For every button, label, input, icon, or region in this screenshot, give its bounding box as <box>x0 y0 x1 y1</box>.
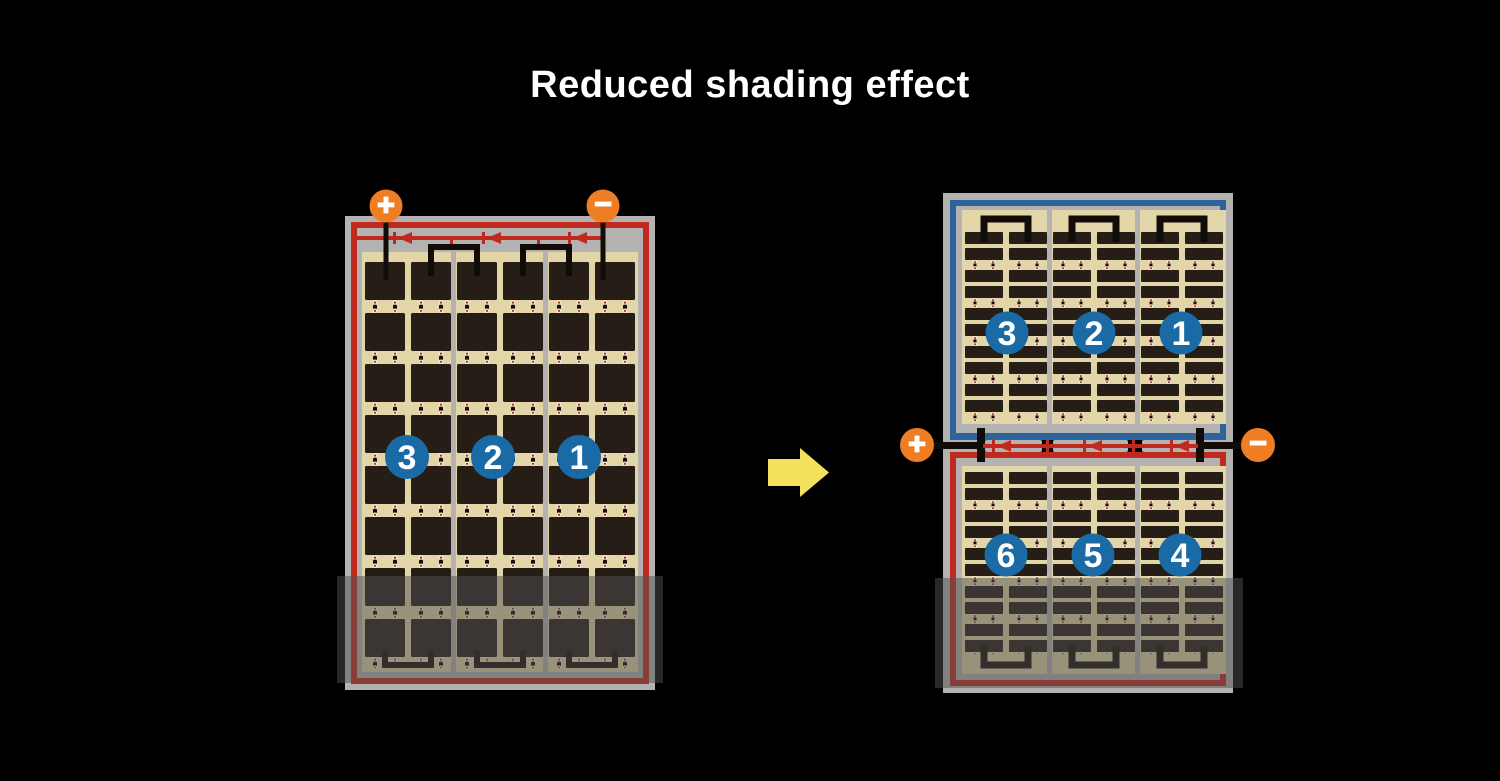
plus-terminal-icon: + <box>370 189 403 223</box>
minus-terminal-icon: − <box>1241 427 1275 462</box>
string-number: 3 <box>998 315 1017 353</box>
string-number-badge: 3 <box>986 312 1029 355</box>
string-number-badge: 6 <box>985 534 1028 577</box>
shading-overlay <box>935 578 1243 688</box>
left-panel: 3 2 1 + − <box>337 188 663 690</box>
right-panel: 3 2 1 <box>900 193 1275 693</box>
string-number-badge: 1 <box>1160 312 1203 355</box>
column-divider <box>1135 210 1140 424</box>
string-number: 1 <box>1172 315 1191 353</box>
right-panel-top-half: 3 2 1 <box>943 193 1233 440</box>
string-number-badge: 3 <box>385 435 429 479</box>
plus-label: + <box>908 428 926 461</box>
string-number-badge: 2 <box>1073 312 1116 355</box>
string-number: 6 <box>997 537 1016 575</box>
string-number: 1 <box>570 439 589 477</box>
string-number: 2 <box>484 439 503 477</box>
minus-label: − <box>1249 427 1267 460</box>
minus-terminal-icon: − <box>587 188 620 223</box>
string-number: 2 <box>1085 315 1104 353</box>
plus-terminal-icon: + <box>900 428 934 462</box>
string-number-badge: 5 <box>1072 534 1115 577</box>
string-number-badge: 4 <box>1159 534 1202 577</box>
shading-diagram: 3 2 1 + − <box>0 0 1500 781</box>
shading-overlay <box>337 576 663 683</box>
plus-label: + <box>377 189 395 222</box>
string-number: 4 <box>1171 537 1190 575</box>
string-number: 5 <box>1084 537 1103 575</box>
string-number: 3 <box>398 439 417 477</box>
string-number-badge: 1 <box>557 435 601 479</box>
minus-label: − <box>594 188 612 221</box>
column-divider <box>1047 210 1052 424</box>
diode-tap <box>1046 440 1049 452</box>
terminal-wire <box>934 442 978 449</box>
string-number-badge: 2 <box>471 435 515 479</box>
diode-tap <box>1132 440 1135 452</box>
right-arrow-icon <box>768 448 829 497</box>
diagram-canvas: Reduced shading effect <box>0 0 1500 781</box>
